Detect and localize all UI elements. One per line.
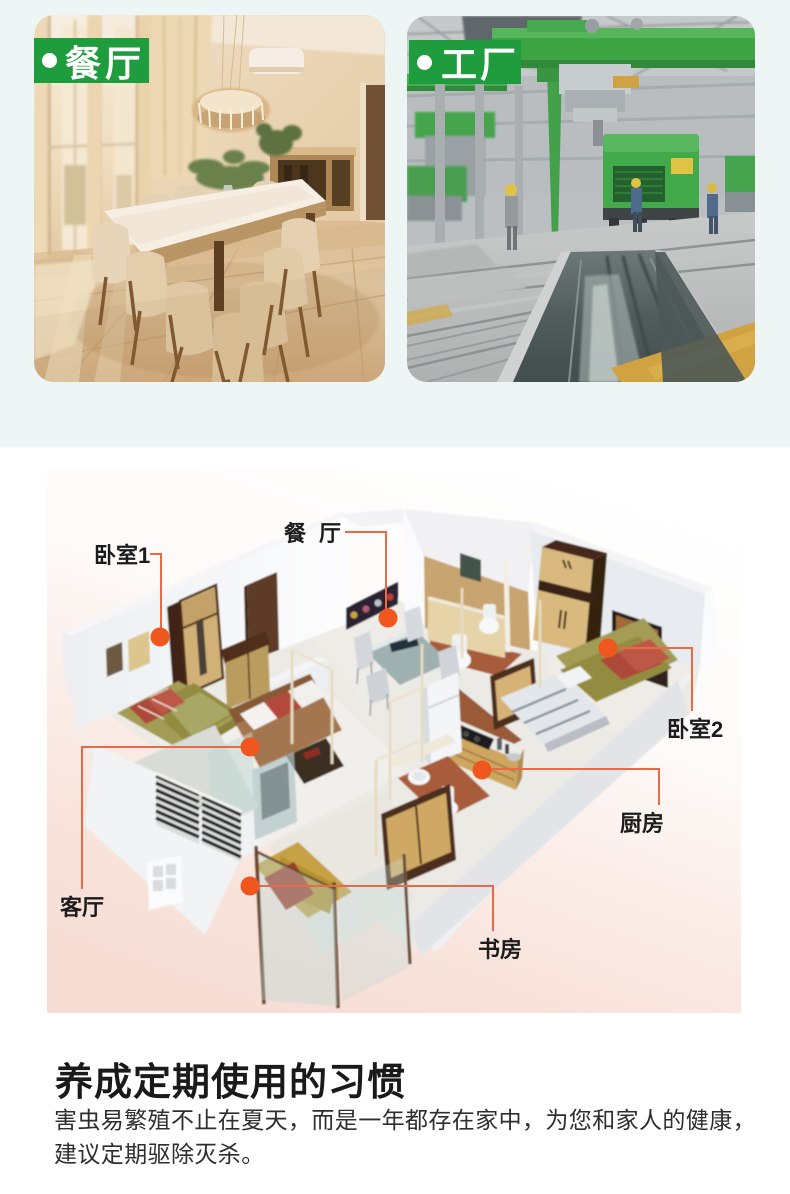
svg-text:卧室2: 卧室2 <box>667 717 723 742</box>
svg-text:书房: 书房 <box>478 937 522 962</box>
svg-text:餐厅: 餐厅 <box>284 521 354 546</box>
svg-text:客厅: 客厅 <box>60 895 104 920</box>
svg-text:厨房: 厨房 <box>620 811 664 836</box>
svg-text:卧室1: 卧室1 <box>94 543 150 568</box>
